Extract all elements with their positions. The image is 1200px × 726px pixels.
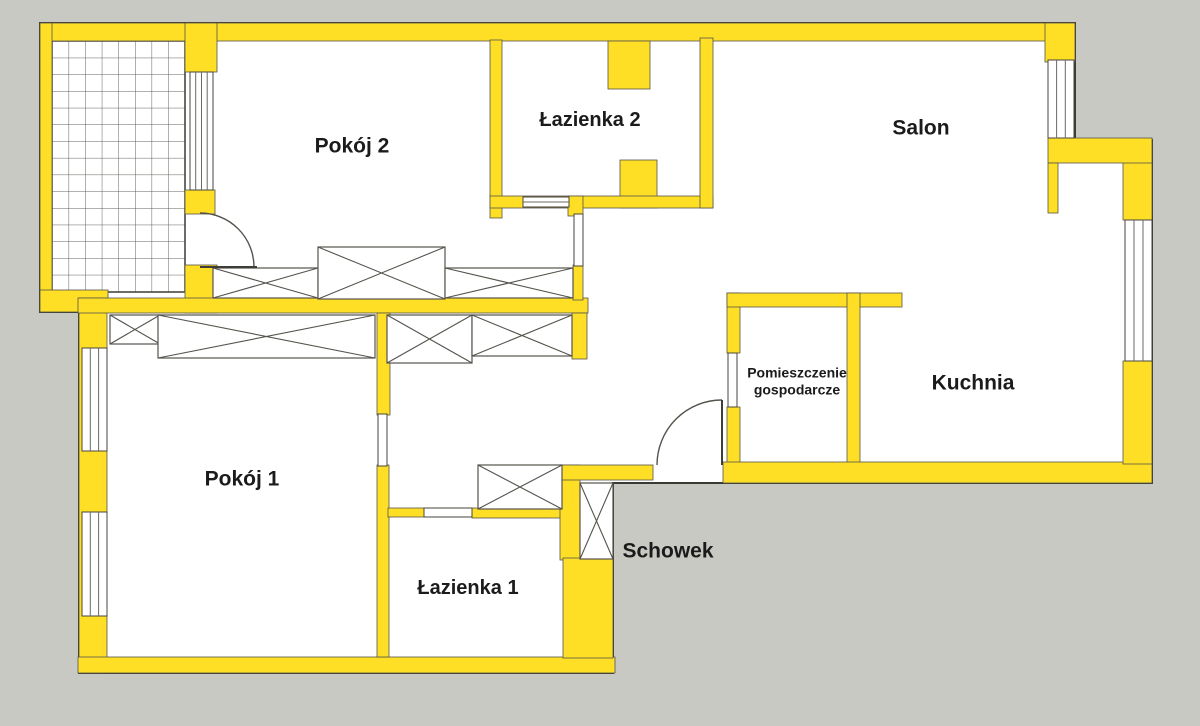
wardrobe-icon: [445, 268, 573, 298]
wall-segment: [700, 38, 713, 208]
wardrobe-icon: [158, 315, 375, 358]
loggia-tiled-floor-icon: [52, 41, 185, 292]
floor-plan-drawing: [0, 0, 1200, 726]
wall-segment: [78, 298, 588, 313]
wall-segment: [847, 293, 860, 467]
wall-segment: [573, 265, 583, 300]
wall-segment: [78, 657, 615, 673]
wall-segment: [388, 508, 424, 517]
wardrobe-icon: [387, 315, 472, 363]
storage-box-icon: [580, 483, 613, 559]
window-icon: [424, 508, 472, 517]
wall-segment: [727, 293, 902, 307]
wall-segment: [490, 40, 502, 218]
window-icon: [82, 348, 107, 451]
wall-segment: [563, 558, 613, 658]
wall-segment: [40, 23, 52, 312]
wall-segment: [608, 41, 650, 89]
wall-segment: [727, 407, 740, 467]
wardrobe-icon: [318, 247, 445, 299]
wall-segment: [547, 465, 653, 480]
wall-segment: [572, 313, 587, 359]
window-icon: [523, 197, 569, 207]
balcony-door-window-icon: [190, 72, 213, 190]
window-icon: [1125, 220, 1152, 361]
window-icon: [728, 353, 737, 407]
wardrobe-icon: [213, 268, 318, 298]
window-icon: [574, 214, 583, 266]
wardrobe-icon: [478, 465, 562, 509]
wall-segment: [185, 23, 217, 72]
wall-segment: [1123, 361, 1152, 464]
wall-segment: [1045, 23, 1075, 62]
window-icon: [82, 512, 107, 616]
wardrobe-icon: [472, 315, 572, 356]
wall-segment: [1048, 138, 1152, 163]
floor-plan: Pokój 2Łazienka 2SalonPokój 1Pomieszczen…: [0, 0, 1200, 726]
window-icon: [378, 414, 387, 466]
wardrobe-icon: [110, 315, 160, 344]
wall-segment: [185, 190, 215, 214]
wall-segment: [723, 462, 1152, 483]
wall-segment: [1048, 163, 1058, 213]
wall-segment: [568, 196, 583, 216]
window-icon: [1048, 60, 1074, 138]
wall-segment: [377, 465, 389, 657]
